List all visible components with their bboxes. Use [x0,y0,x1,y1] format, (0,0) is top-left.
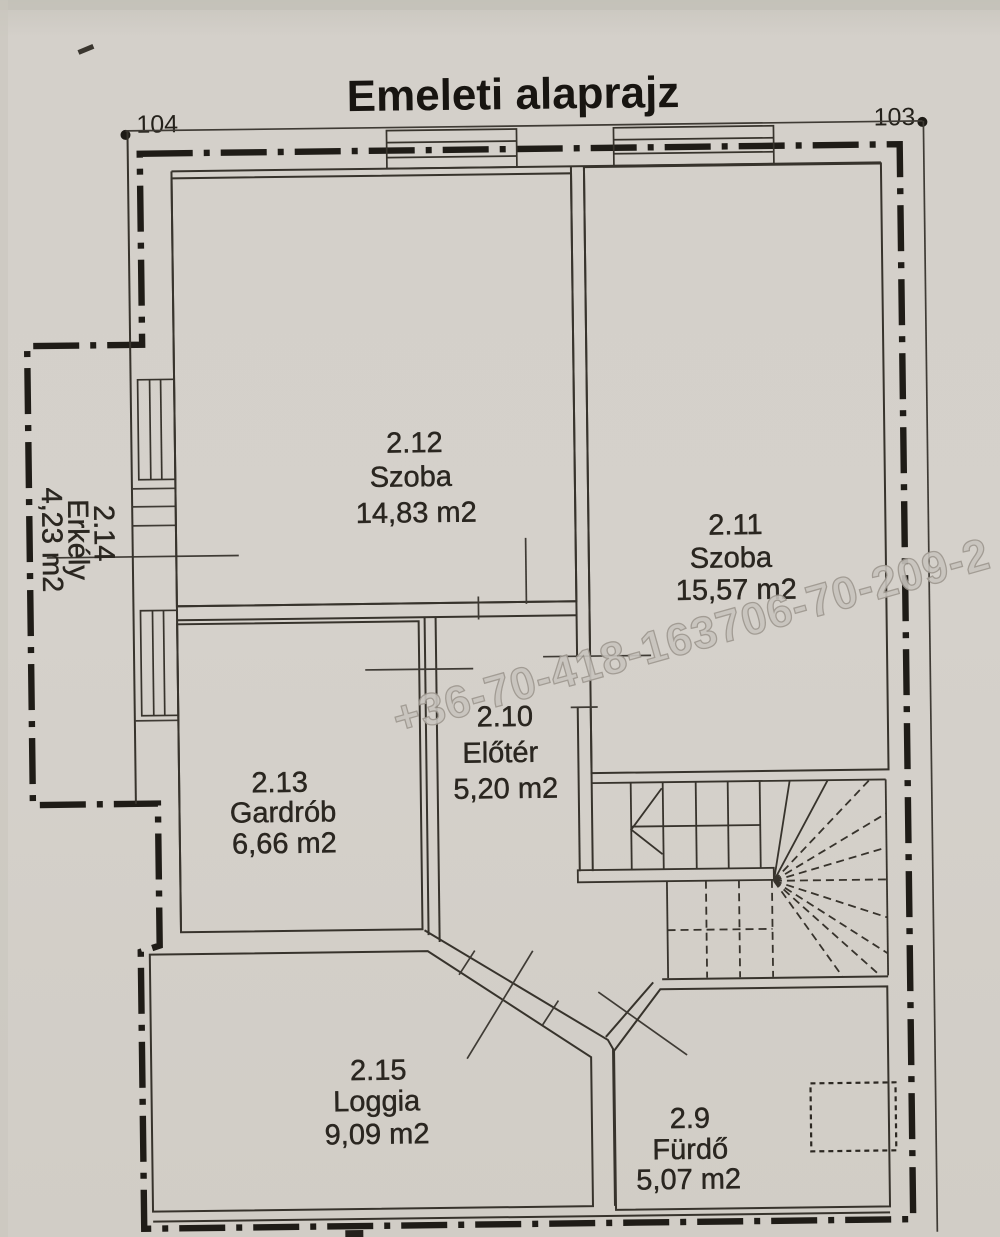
svg-text:103: 103 [873,103,915,132]
svg-text:2.13: 2.13 [251,767,308,800]
svg-text:6,66 m2: 6,66 m2 [232,827,337,860]
svg-text:5,20 m2: 5,20 m2 [453,773,558,806]
svg-text:14,83 m2: 14,83 m2 [356,497,477,531]
svg-text:104: 104 [136,110,178,139]
svg-text:Fürdő: Fürdő [652,1133,728,1166]
svg-text:4,23 m2: 4,23 m2 [35,487,68,592]
svg-text:Gardrób: Gardrób [230,796,337,829]
svg-text:2.9: 2.9 [670,1103,711,1136]
svg-text:5,07 m2: 5,07 m2 [636,1163,741,1196]
svg-text:Előtér: Előtér [462,737,538,770]
svg-text:9,09 m2: 9,09 m2 [324,1118,429,1151]
svg-text:Szoba: Szoba [690,542,773,575]
svg-text:2.15: 2.15 [350,1054,407,1087]
svg-text:Loggia: Loggia [333,1085,421,1118]
svg-text:Szoba: Szoba [370,461,453,494]
svg-text:2.12: 2.12 [386,427,443,460]
svg-text:2.11: 2.11 [708,509,763,542]
svg-text:Emeleti alaprajz: Emeleti alaprajz [346,68,679,121]
